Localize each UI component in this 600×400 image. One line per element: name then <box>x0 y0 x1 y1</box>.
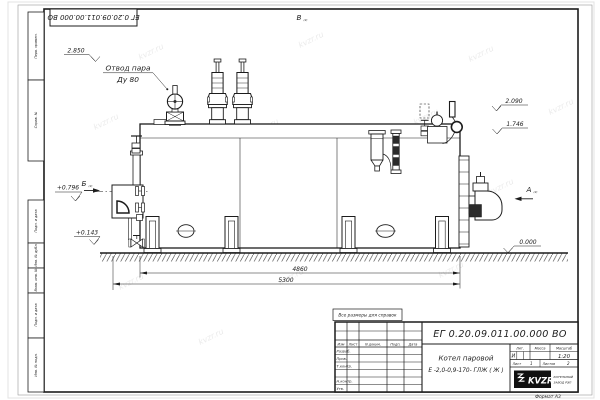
margin-label: Инв. № подл. <box>34 353 38 376</box>
dimension-overall-length: 5300 <box>278 277 293 284</box>
boiler-general-view-drawing: kvzr.ru kvzr.ru kvzr.ru kvzr.ru kvzr.ru … <box>0 0 600 400</box>
margin-label: Инв. № дубл. <box>34 243 38 266</box>
drawing-sheet: kvzr.ru kvzr.ru kvzr.ru kvzr.ru kvzr.ru … <box>0 0 600 400</box>
elevation-rear-upper: 2.090 <box>492 98 528 111</box>
dome <box>431 115 442 126</box>
elevation-value: 2.090 <box>505 98 522 105</box>
reference-note: Все размеры для справок <box>333 309 402 321</box>
support-leg <box>434 217 451 253</box>
boiler-body <box>140 124 469 248</box>
elevation-rear-lower: 1.746 <box>493 121 529 134</box>
view-label-b: Б <box>82 179 87 188</box>
view-label-a-ref: (2) <box>534 190 538 194</box>
ground <box>100 253 568 262</box>
watermark-text: kvzr.ru <box>547 97 575 117</box>
steam-outlet-valve <box>154 86 185 126</box>
elevation-value: 0.000 <box>519 239 536 246</box>
counterweight <box>451 122 462 133</box>
format-label: Формат А3 <box>535 394 561 400</box>
elevation-ground: 0.000 <box>504 239 542 253</box>
elevation-value: 1.746 <box>506 121 523 128</box>
litera-label: Лит. <box>515 347 524 351</box>
margin-label: Взам. инв. № <box>34 268 38 291</box>
watermark-text: kvzr.ru <box>297 30 325 50</box>
mass-label: Масса <box>535 347 546 351</box>
watermark-text: kvzr.ru <box>117 272 145 292</box>
view-label-b-ref: (2) <box>89 184 93 188</box>
elevation-value: +0.143 <box>76 230 98 237</box>
view-label-v: В <box>297 13 302 22</box>
view-label-v-ref: (2) <box>304 18 308 22</box>
burner <box>469 172 502 220</box>
steam-outlet-callout: Отвод пара Ду 80 <box>103 64 168 91</box>
rotated-designation-box: ЕГ 0.20.09.011.00.000 ВО <box>47 9 140 26</box>
elevation-top: 2.850 <box>64 48 100 62</box>
support-leg <box>223 217 240 253</box>
margin-stamp-cells: Перв. примен. Справ. № Подп. и дата Инв.… <box>28 12 44 392</box>
elevation-value: +0.796 <box>57 185 79 192</box>
sheet-number: 1 <box>530 361 533 366</box>
watermark-text: kvzr.ru <box>137 42 165 62</box>
support-leg <box>144 217 161 253</box>
title-block: Изм Лист N докум. Подп. Дата Разраб. Про… <box>335 322 578 392</box>
logo-text: KVZR <box>528 375 554 385</box>
elevation-front-low: +0.143 <box>74 230 100 245</box>
watermark-text: kvzr.ru <box>437 260 465 280</box>
row-approved: Утв. <box>337 387 345 391</box>
gauge-glass <box>391 130 401 174</box>
col-sign: Подп. <box>390 342 400 346</box>
margin-label: Справ. № <box>34 111 38 128</box>
sheets-label: Листов <box>542 362 556 366</box>
title-designation: ЕГ 0.20.09.011.00.000 ВО <box>433 329 567 340</box>
steam-outlet-label-line2: Ду 80 <box>116 75 139 84</box>
margin-label: Подп. и дата <box>34 303 38 326</box>
margin-label: Перв. примен. <box>34 33 38 58</box>
rear-flange-strip <box>459 156 469 247</box>
col-date: Дата <box>408 342 418 346</box>
steam-outlet-label-line1: Отвод пара <box>105 64 151 73</box>
row-ncontrol: Н.контр. <box>337 380 353 384</box>
watermark-text: kvzr.ru <box>92 112 120 132</box>
rotated-designation-text: ЕГ 0.20.09.011.00.000 ВО <box>47 13 140 21</box>
support-leg <box>340 217 357 253</box>
safety-valve-1 <box>208 59 228 124</box>
row-checked: Пров. <box>337 357 347 361</box>
elevation-value: 2.850 <box>67 48 84 55</box>
col-list: Лист <box>348 342 359 346</box>
scale-value: 1:20 <box>558 354 571 360</box>
row-developed: Разраб. <box>337 350 351 354</box>
watermark-text: kvzr.ru <box>467 44 495 64</box>
row-tcontrol: Т.контр. <box>337 365 353 369</box>
view-label-a: А <box>526 185 532 194</box>
sheet-label: Лист <box>512 362 523 366</box>
margin-label: Подп. и дата <box>34 209 38 232</box>
burner-motor <box>470 205 482 218</box>
company-name-line1: КОТЕЛЬНЫЙ <box>554 374 574 379</box>
reference-note-text: Все размеры для справок <box>338 313 397 319</box>
elevation-front-mid: +0.796 <box>55 185 82 202</box>
product-name-line2: Е -2,0-0,9-170- ГЛЖ ( Ж ) <box>428 368 503 374</box>
col-doc: N докум. <box>365 342 381 346</box>
safety-valve-2 <box>233 59 253 124</box>
litera-value: И <box>512 354 516 360</box>
scale-label: Масштаб <box>556 347 572 351</box>
col-izm: Изм <box>338 342 345 346</box>
dimension-boiler-length: 4860 <box>292 266 307 273</box>
company-name-line2: ЗАВОД РЭП <box>554 381 573 385</box>
watermark-text: kvzr.ru <box>197 327 225 347</box>
product-name-line1: Котел паровой <box>439 355 494 363</box>
